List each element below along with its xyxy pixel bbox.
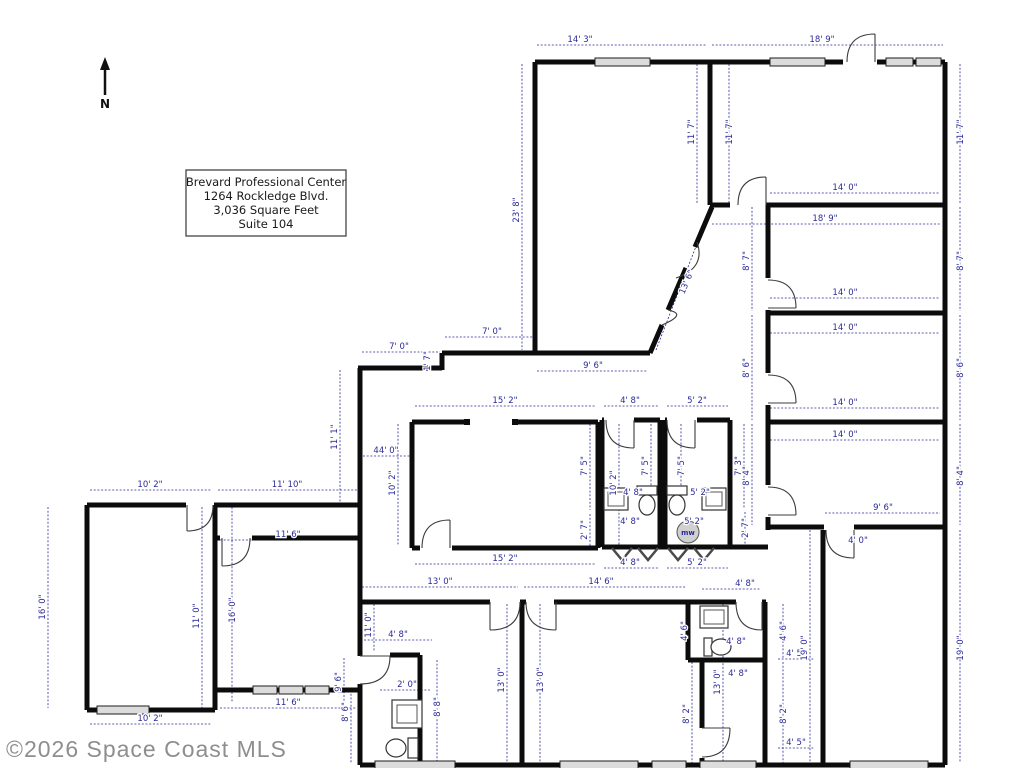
svg-text:9' 6": 9' 6" [334, 672, 344, 692]
dimension-labels: 14' 3"18' 9"23' 8"11' 7"11' 7"11' 7"14' … [38, 35, 966, 748]
svg-text:5' 2": 5' 2" [687, 396, 707, 406]
svg-text:9' 6": 9' 6" [583, 361, 603, 371]
vanity-sink [392, 700, 422, 728]
svg-text:11' 0": 11' 0" [364, 612, 374, 637]
floor-plan-page: mw 14' 3"18' 9"23' 8"11' 7"11' 7"11' 7"1… [0, 0, 1024, 768]
svg-text:11' 7": 11' 7" [687, 119, 697, 144]
svg-text:4' 8": 4' 8" [735, 579, 755, 589]
svg-text:7' 5": 7' 5" [580, 456, 590, 476]
svg-text:13' 0": 13' 0" [536, 667, 546, 692]
title-line-4: Suite 104 [239, 217, 294, 231]
svg-text:4' 6": 4' 6" [779, 621, 789, 641]
svg-text:14' 6": 14' 6" [588, 577, 613, 587]
svg-text:10' 2": 10' 2" [137, 714, 162, 724]
svg-text:16' 0": 16' 0" [38, 594, 48, 619]
svg-text:14' 0": 14' 0" [832, 430, 857, 440]
svg-text:7' 0": 7' 0" [482, 327, 502, 337]
svg-text:2' 0": 2' 0" [397, 680, 417, 690]
svg-text:2' 7": 2' 7" [580, 520, 590, 540]
svg-text:19' 0": 19' 0" [800, 635, 810, 660]
svg-text:4' 8": 4' 8" [726, 637, 746, 647]
floor-plan-canvas: mw 14' 3"18' 9"23' 8"11' 7"11' 7"11' 7"1… [0, 0, 1024, 768]
svg-text:2' 7": 2' 7" [741, 518, 751, 538]
svg-text:11' 7": 11' 7" [725, 119, 735, 144]
svg-text:19' 0": 19' 0" [956, 635, 966, 660]
svg-text:8' 7": 8' 7" [956, 251, 966, 271]
doors [187, 34, 875, 757]
svg-text:4' 8": 4' 8" [388, 630, 408, 640]
svg-text:4' 8": 4' 8" [623, 488, 643, 498]
svg-text:8' 6": 8' 6" [956, 358, 966, 378]
svg-text:14' 0": 14' 0" [832, 398, 857, 408]
svg-text:4' 5": 4' 5" [786, 738, 806, 748]
svg-text:11' 6": 11' 6" [275, 530, 300, 540]
svg-text:15' 2": 15' 2" [492, 396, 517, 406]
svg-text:8' 2": 8' 2" [779, 704, 789, 724]
svg-text:8' 7": 8' 7" [742, 251, 752, 271]
svg-text:7' 0": 7' 0" [389, 342, 409, 352]
svg-text:9' 6": 9' 6" [873, 503, 893, 513]
svg-text:11' 10": 11' 10" [272, 480, 303, 490]
title-line-3: 3,036 Square Feet [213, 203, 319, 217]
svg-text:4' 8": 4' 8" [728, 669, 748, 679]
svg-text:11' 0": 11' 0" [192, 603, 202, 628]
svg-text:7' 5": 7' 5" [677, 456, 687, 476]
svg-text:4' 6": 4' 6" [680, 621, 690, 641]
title-block: Brevard Professional Center 1264 Rockled… [186, 170, 347, 236]
svg-text:23' 8": 23' 8" [512, 197, 522, 222]
svg-text:16' 0": 16' 0" [228, 597, 238, 622]
svg-text:5' 2": 5' 2" [684, 517, 704, 527]
svg-text:4' 8": 4' 8" [620, 558, 640, 568]
svg-text:10' 2": 10' 2" [609, 470, 619, 495]
title-line-1: Brevard Professional Center [186, 175, 347, 189]
svg-text:8' 2": 8' 2" [682, 704, 692, 724]
svg-text:13' 0": 13' 0" [497, 667, 507, 692]
svg-text:14' 0": 14' 0" [832, 323, 857, 333]
svg-text:14' 0": 14' 0" [832, 288, 857, 298]
toilet [667, 486, 687, 515]
watermark: ©2026 Space Coast MLS [6, 736, 287, 762]
mw-label: mw [681, 529, 695, 537]
svg-text:11' 1": 11' 1" [330, 424, 340, 449]
svg-text:44' 0": 44' 0" [373, 446, 398, 456]
vanity-sink [700, 606, 728, 628]
walls [87, 62, 945, 765]
svg-text:13' 0": 13' 0" [427, 577, 452, 587]
svg-text:15' 2": 15' 2" [492, 554, 517, 564]
svg-text:11' 7": 11' 7" [956, 119, 966, 144]
svg-text:8' 6": 8' 6" [742, 358, 752, 378]
svg-text:10' 2": 10' 2" [137, 480, 162, 490]
svg-text:10' 2": 10' 2" [388, 470, 398, 495]
svg-text:4' 0": 4' 0" [848, 536, 868, 546]
toilet [386, 738, 418, 758]
svg-text:5' 2": 5' 2" [687, 558, 707, 568]
svg-text:18' 9": 18' 9" [809, 35, 834, 45]
svg-text:8' 4": 8' 4" [956, 466, 966, 486]
svg-text:5' 2": 5' 2" [690, 488, 710, 498]
north-arrow-icon: N [100, 57, 110, 111]
svg-text:8' 6": 8' 6" [341, 702, 351, 722]
north-label: N [100, 97, 110, 111]
title-line-2: 1264 Rockledge Blvd. [204, 189, 329, 203]
svg-text:8' 8": 8' 8" [433, 697, 443, 717]
svg-text:4' 8": 4' 8" [620, 517, 640, 527]
windows [97, 58, 941, 768]
svg-text:18' 9": 18' 9" [812, 214, 837, 224]
svg-text:11' 6": 11' 6" [275, 698, 300, 708]
svg-text:13' 0": 13' 0" [713, 669, 723, 694]
svg-text:1' 7": 1' 7" [423, 351, 433, 371]
svg-text:14' 0": 14' 0" [832, 183, 857, 193]
svg-text:7' 3": 7' 3" [734, 456, 744, 476]
svg-text:4' 8": 4' 8" [620, 396, 640, 406]
svg-text:14' 3": 14' 3" [567, 35, 592, 45]
svg-text:7' 5": 7' 5" [641, 456, 651, 476]
